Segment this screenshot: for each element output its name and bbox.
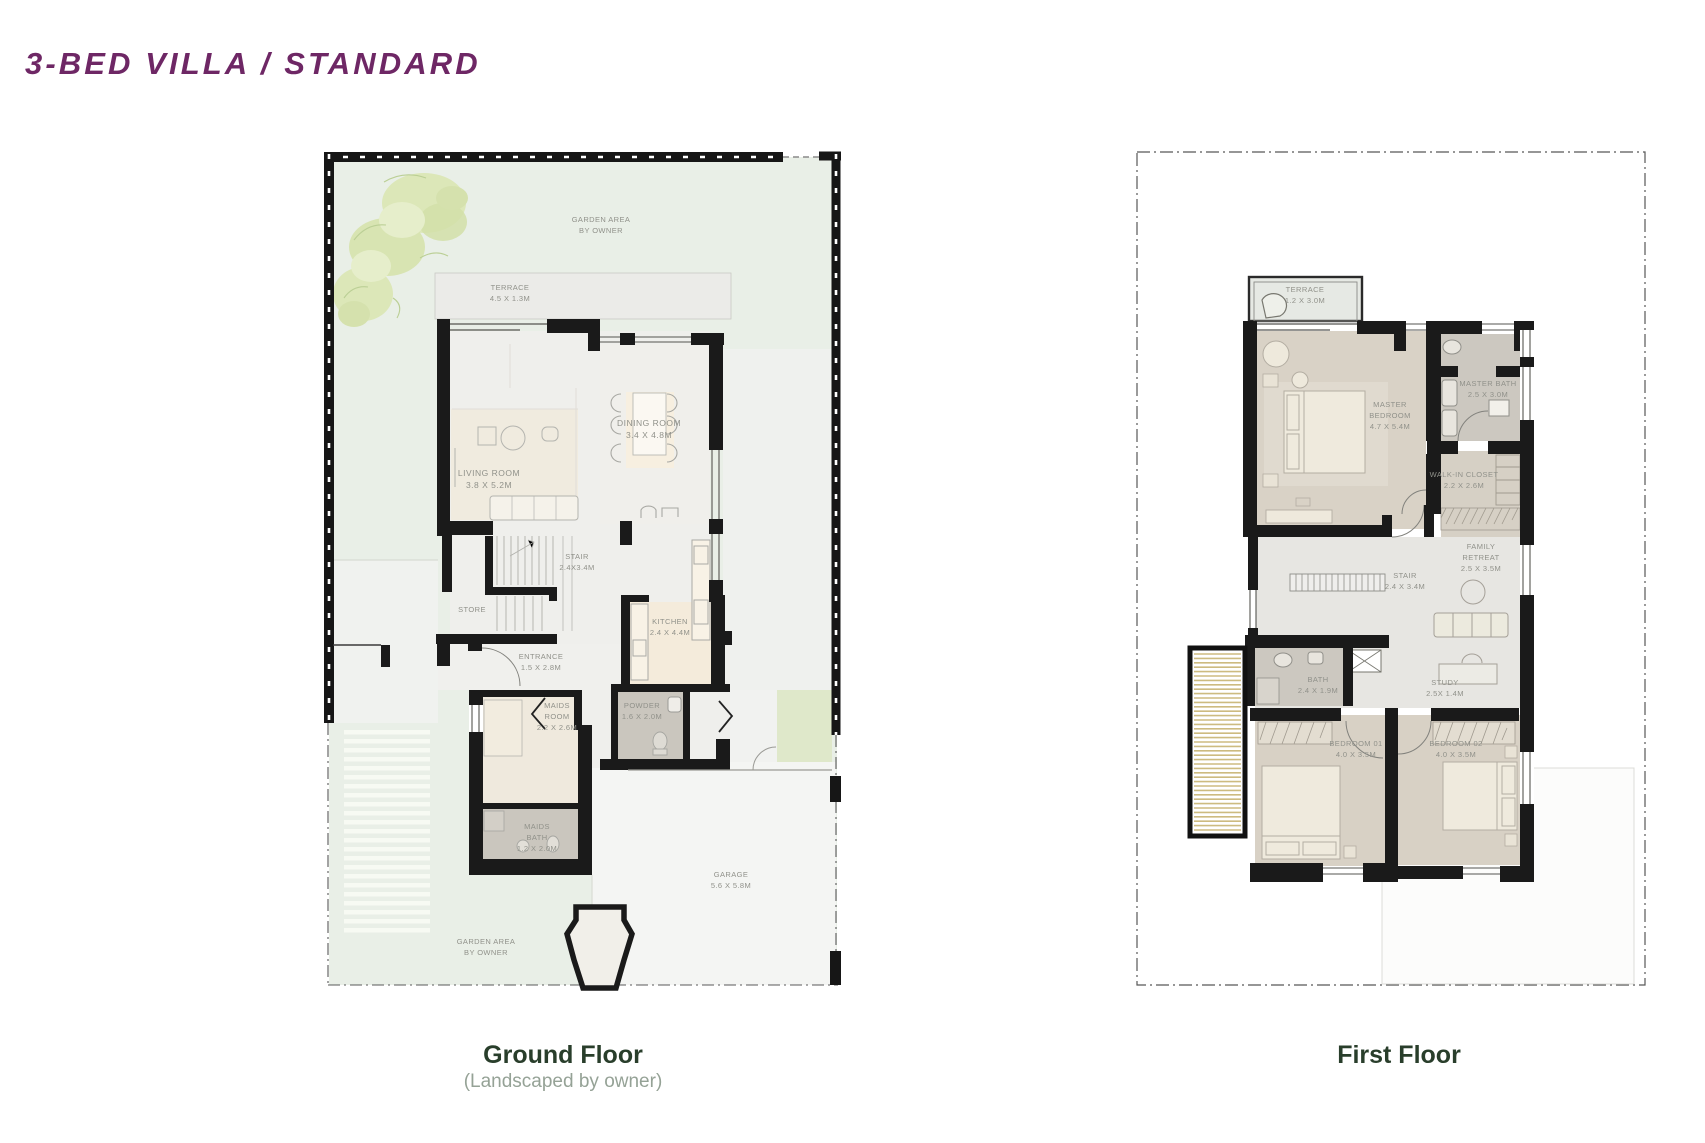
svg-text:BEDROOM 02: BEDROOM 02 (1429, 739, 1482, 748)
svg-text:(Landscaped by owner): (Landscaped by owner) (464, 1071, 663, 1092)
svg-text:BY OWNER: BY OWNER (464, 948, 508, 957)
svg-text:4.7 X 5.4M: 4.7 X 5.4M (1370, 422, 1410, 431)
svg-text:2.4 X 4.4M: 2.4 X 4.4M (650, 628, 690, 637)
svg-text:WALK-IN CLOSET: WALK-IN CLOSET (1430, 470, 1499, 479)
svg-text:Ground Floor: Ground Floor (483, 1041, 643, 1069)
svg-text:MASTER: MASTER (1373, 400, 1407, 409)
svg-text:STUDY: STUDY (1431, 678, 1458, 687)
svg-text:KITCHEN: KITCHEN (652, 617, 688, 626)
svg-text:1.5 X 2.8M: 1.5 X 2.8M (521, 663, 561, 672)
svg-text:GARDEN AREA: GARDEN AREA (572, 215, 631, 224)
svg-text:STAIR: STAIR (1393, 571, 1417, 580)
svg-text:MAIDS: MAIDS (544, 701, 570, 710)
svg-text:1.2 X 3.0M: 1.2 X 3.0M (1285, 296, 1325, 305)
svg-text:DINING ROOM: DINING ROOM (617, 418, 681, 428)
svg-text:STORE: STORE (458, 605, 486, 614)
svg-text:2.5 X 3.0M: 2.5 X 3.0M (1468, 390, 1508, 399)
svg-text:BEDROOM 01: BEDROOM 01 (1329, 739, 1382, 748)
svg-text:4.0 X 3.5M: 4.0 X 3.5M (1436, 750, 1476, 759)
svg-text:BY OWNER: BY OWNER (579, 226, 623, 235)
svg-text:BATH: BATH (526, 833, 547, 842)
svg-text:ENTRANCE: ENTRANCE (519, 652, 563, 661)
svg-text:MAIDS: MAIDS (524, 822, 550, 831)
svg-text:3-BED VILLA / STANDARD: 3-BED VILLA / STANDARD (25, 46, 481, 81)
svg-text:2.4 X 3.4M: 2.4 X 3.4M (1385, 582, 1425, 591)
svg-text:RETREAT: RETREAT (1462, 553, 1499, 562)
svg-text:5.6 X 5.8M: 5.6 X 5.8M (711, 881, 751, 890)
svg-text:BEDROOM: BEDROOM (1369, 411, 1411, 420)
svg-text:4.5 X 1.3M: 4.5 X 1.3M (490, 294, 530, 303)
svg-text:FAMILY: FAMILY (1467, 542, 1496, 551)
svg-text:2.5X 1.4M: 2.5X 1.4M (1426, 689, 1464, 698)
svg-text:2.4 X 1.9M: 2.4 X 1.9M (1298, 686, 1338, 695)
svg-text:2.5 X 3.5M: 2.5 X 3.5M (1461, 564, 1501, 573)
svg-text:STAIR: STAIR (565, 552, 589, 561)
svg-text:GARDEN AREA: GARDEN AREA (457, 937, 516, 946)
svg-text:TERRACE: TERRACE (491, 283, 530, 292)
svg-text:First Floor: First Floor (1337, 1041, 1461, 1069)
svg-text:LIVING ROOM: LIVING ROOM (458, 468, 520, 478)
svg-text:2.2 X 2.6M: 2.2 X 2.6M (537, 723, 577, 732)
svg-text:1.2 X 2.0M: 1.2 X 2.0M (517, 844, 557, 853)
svg-text:2.4X3.4M: 2.4X3.4M (559, 563, 594, 572)
svg-text:4.0 X 3.5M: 4.0 X 3.5M (1336, 750, 1376, 759)
svg-text:ROOM: ROOM (545, 712, 570, 721)
svg-text:BATH: BATH (1307, 675, 1328, 684)
svg-text:3.8 X 5.2M: 3.8 X 5.2M (466, 480, 512, 490)
svg-text:1.6 X 2.0M: 1.6 X 2.0M (622, 712, 662, 721)
svg-text:GARAGE: GARAGE (714, 870, 749, 879)
svg-text:TERRACE: TERRACE (1286, 285, 1325, 294)
svg-text:2.2 X 2.6M: 2.2 X 2.6M (1444, 481, 1484, 490)
svg-text:3.4 X 4.8M: 3.4 X 4.8M (626, 430, 672, 440)
svg-text:POWDER: POWDER (624, 701, 660, 710)
svg-text:MASTER BATH: MASTER BATH (1459, 379, 1516, 388)
